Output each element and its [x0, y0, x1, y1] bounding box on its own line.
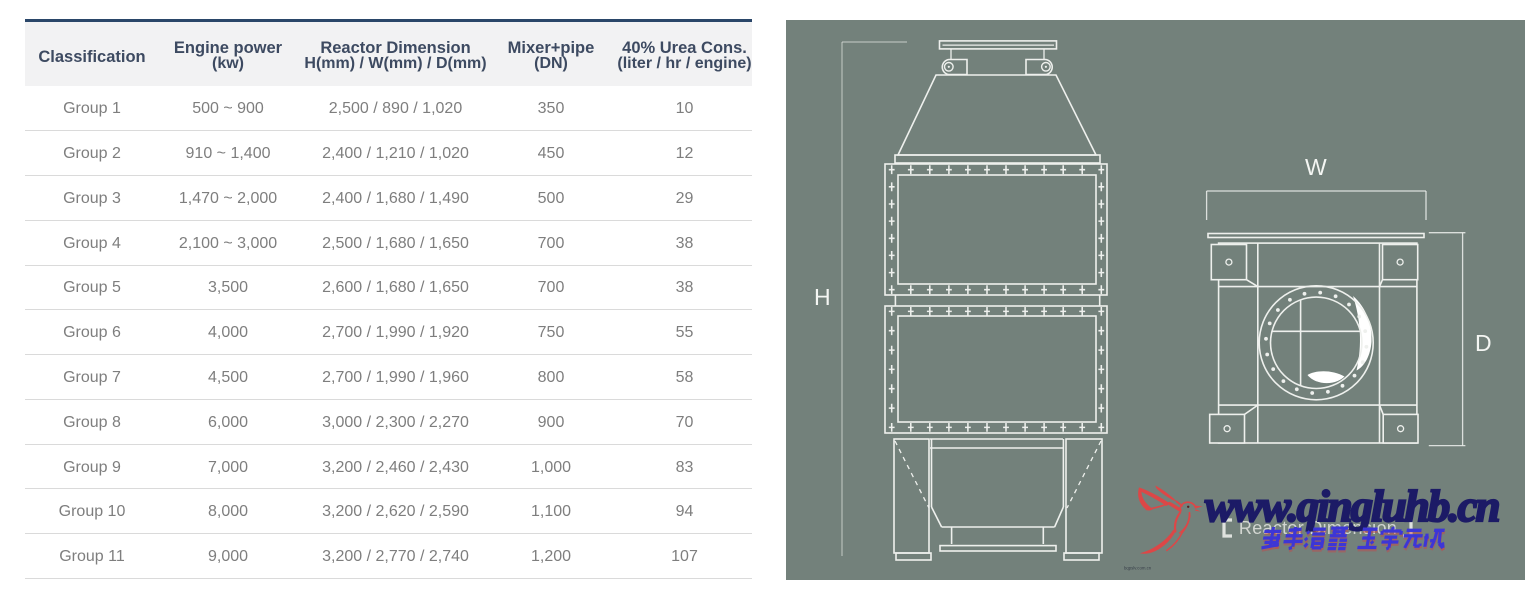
svg-text:bqpslv.com.cn: bqpslv.com.cn	[1124, 566, 1152, 571]
